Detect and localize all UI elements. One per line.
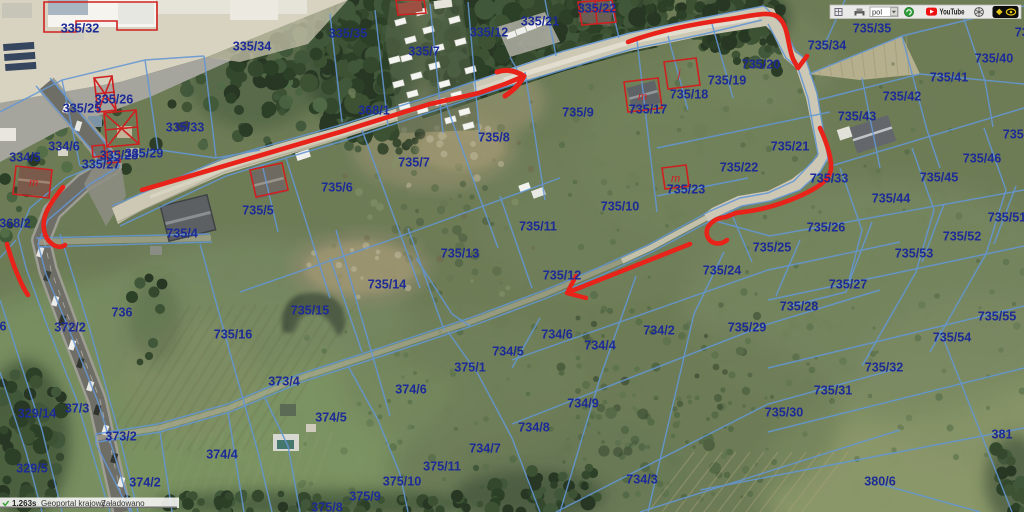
- svg-text:734/2: 734/2: [643, 324, 675, 338]
- svg-text:735/41: 735/41: [930, 71, 969, 85]
- svg-text:735/55: 735/55: [978, 310, 1017, 324]
- svg-text:735/46: 735/46: [963, 152, 1002, 166]
- svg-text:734/5: 734/5: [492, 345, 524, 359]
- svg-text:734/8: 734/8: [518, 421, 550, 435]
- svg-text:735/16: 735/16: [214, 328, 253, 342]
- svg-text:334/5: 334/5: [9, 151, 41, 165]
- svg-text:6: 6: [0, 320, 7, 334]
- svg-text:374/4: 374/4: [206, 448, 238, 462]
- svg-text:734/6: 734/6: [541, 328, 573, 342]
- svg-text:735/17: 735/17: [629, 103, 668, 117]
- svg-text:375/9: 375/9: [349, 490, 381, 504]
- svg-text:735/40: 735/40: [975, 52, 1014, 66]
- svg-text:735/10: 735/10: [601, 200, 640, 214]
- svg-text:735/43: 735/43: [838, 110, 877, 124]
- svg-text:pol: pol: [872, 7, 882, 16]
- svg-text:735/6: 735/6: [321, 181, 353, 195]
- svg-text:735/47: 735/47: [1003, 128, 1024, 142]
- svg-text:735/8: 735/8: [478, 131, 510, 145]
- svg-text:375/11: 375/11: [423, 460, 461, 474]
- svg-text:m: m: [29, 177, 38, 189]
- svg-text:374/5: 374/5: [315, 411, 347, 425]
- svg-text:735/18: 735/18: [670, 88, 709, 102]
- svg-text:735/52: 735/52: [943, 230, 982, 244]
- svg-text:374/2: 374/2: [129, 476, 161, 490]
- svg-text:735/21: 735/21: [771, 140, 810, 154]
- svg-text:734/4: 734/4: [584, 339, 616, 353]
- svg-text:735/28: 735/28: [780, 300, 819, 314]
- svg-text:335/32: 335/32: [61, 22, 100, 36]
- svg-text:374/6: 374/6: [395, 383, 427, 397]
- svg-text:375/8: 375/8: [311, 501, 343, 513]
- svg-text:735/14: 735/14: [368, 278, 407, 292]
- svg-text:735/35: 735/35: [853, 22, 892, 36]
- svg-text:375/1: 375/1: [454, 361, 486, 375]
- svg-text:372/2: 372/2: [54, 321, 86, 335]
- svg-text:368/1: 368/1: [358, 104, 390, 118]
- svg-text:735/54: 735/54: [933, 331, 972, 345]
- svg-text:735/29: 735/29: [728, 321, 767, 335]
- svg-text:735/45: 735/45: [920, 171, 959, 185]
- svg-text:335/29: 335/29: [125, 147, 164, 161]
- svg-text:735/7: 735/7: [398, 156, 430, 170]
- svg-text:735/12: 735/12: [543, 269, 582, 283]
- svg-text:335/27: 335/27: [82, 158, 121, 172]
- svg-text:735/25: 735/25: [753, 241, 792, 255]
- svg-text:735/53: 735/53: [895, 247, 934, 261]
- svg-text:335/34: 335/34: [233, 40, 272, 54]
- svg-text:735/51: 735/51: [988, 211, 1024, 225]
- svg-text:375/10: 375/10: [383, 475, 422, 489]
- svg-text:1.263s: 1.263s: [12, 499, 37, 508]
- svg-text:735/20: 735/20: [742, 58, 781, 72]
- svg-text:Załadowano: Załadowano: [101, 499, 145, 508]
- svg-text:735/15: 735/15: [291, 304, 330, 318]
- svg-text:735/32: 735/32: [865, 361, 904, 375]
- svg-text:m: m: [638, 91, 647, 103]
- svg-text:335/12: 335/12: [470, 26, 509, 40]
- svg-text:335/7: 335/7: [408, 45, 440, 59]
- svg-text:734/7: 734/7: [469, 442, 501, 456]
- svg-text:Geoportal krajowy: Geoportal krajowy: [41, 499, 105, 508]
- svg-text:735/5: 735/5: [242, 204, 274, 218]
- svg-text:37/3: 37/3: [65, 402, 90, 416]
- svg-text:735/24: 735/24: [703, 264, 742, 278]
- svg-text:735/23: 735/23: [667, 183, 706, 197]
- svg-text:735/44: 735/44: [872, 192, 911, 206]
- svg-text:736: 736: [111, 306, 132, 320]
- svg-text:335/35: 335/35: [329, 27, 368, 41]
- svg-text:734/9: 734/9: [567, 397, 599, 411]
- svg-text:335/26: 335/26: [95, 93, 134, 107]
- svg-text:373/2: 373/2: [105, 430, 137, 444]
- svg-text:735/34: 735/34: [808, 39, 847, 53]
- svg-text:735/30: 735/30: [765, 406, 804, 420]
- svg-text:735/33: 735/33: [810, 172, 849, 186]
- svg-text:735/42: 735/42: [883, 90, 922, 104]
- svg-text:735/4: 735/4: [166, 227, 198, 241]
- svg-text:335/33: 335/33: [166, 121, 205, 135]
- svg-text:329/14: 329/14: [18, 407, 57, 421]
- svg-text:373/4: 373/4: [268, 375, 300, 389]
- svg-text:735/22: 735/22: [720, 161, 759, 175]
- svg-text:329/5: 329/5: [16, 462, 48, 476]
- svg-text:735/13: 735/13: [441, 247, 480, 261]
- svg-text:334/6: 334/6: [48, 140, 80, 154]
- svg-text:735/31: 735/31: [814, 384, 853, 398]
- svg-text:735/19: 735/19: [708, 74, 747, 88]
- svg-text:YouTube: YouTube: [940, 8, 966, 17]
- svg-text:335/22: 335/22: [578, 2, 617, 16]
- svg-text:734/3: 734/3: [626, 473, 658, 487]
- svg-text:735/27: 735/27: [829, 278, 868, 292]
- svg-text:368/2: 368/2: [0, 217, 31, 231]
- svg-text:380/6: 380/6: [864, 475, 896, 489]
- svg-text:735/38: 735/38: [1015, 26, 1024, 40]
- svg-text:381: 381: [991, 428, 1012, 442]
- svg-text:735/11: 735/11: [519, 220, 557, 234]
- svg-text:335/21: 335/21: [521, 15, 560, 29]
- svg-text:735/26: 735/26: [807, 221, 846, 235]
- svg-text:735/9: 735/9: [562, 106, 594, 120]
